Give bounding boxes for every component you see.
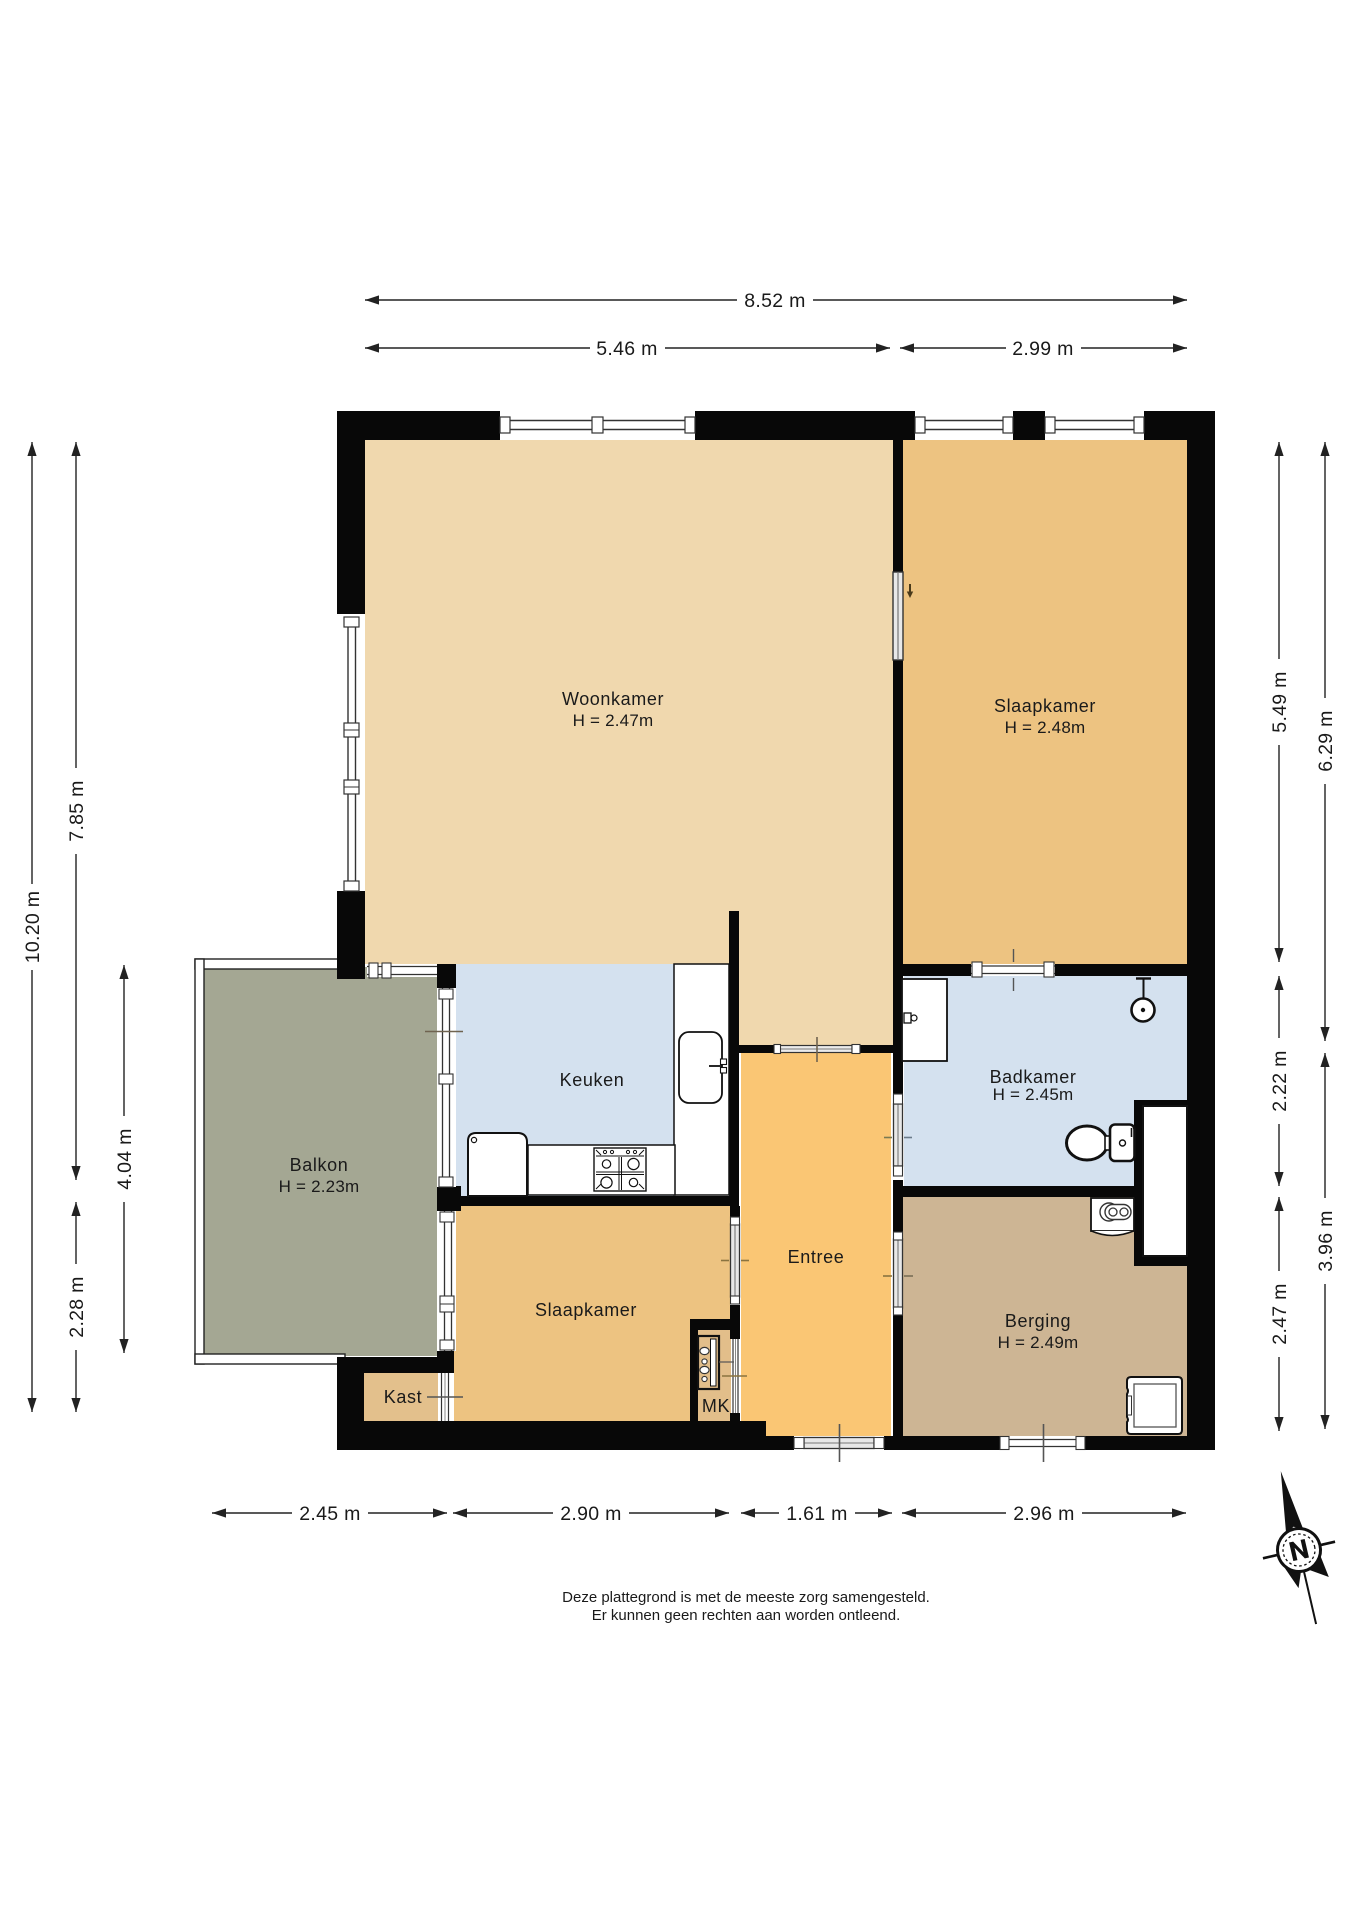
- svg-text:3.96 m: 3.96 m: [1315, 1210, 1337, 1271]
- svg-text:5.49 m: 5.49 m: [1269, 671, 1291, 732]
- svg-text:2.96 m: 2.96 m: [1013, 1503, 1074, 1525]
- svg-text:6.29 m: 6.29 m: [1315, 710, 1337, 771]
- svg-text:H = 2.45m: H = 2.45m: [993, 1085, 1074, 1104]
- svg-text:Kast: Kast: [384, 1387, 422, 1407]
- svg-text:Er kunnen geen rechten aan wor: Er kunnen geen rechten aan worden ontlee…: [592, 1607, 901, 1624]
- svg-text:Badkamer: Badkamer: [990, 1067, 1077, 1087]
- svg-text:1.61 m: 1.61 m: [786, 1503, 847, 1525]
- svg-text:2.47 m: 2.47 m: [1269, 1283, 1291, 1344]
- svg-text:Woonkamer: Woonkamer: [562, 689, 664, 709]
- svg-text:Slaapkamer: Slaapkamer: [994, 696, 1096, 716]
- svg-text:Keuken: Keuken: [560, 1070, 625, 1090]
- svg-text:H = 2.49m: H = 2.49m: [998, 1333, 1079, 1352]
- svg-text:7.85 m: 7.85 m: [66, 780, 88, 841]
- svg-text:MK: MK: [702, 1396, 730, 1416]
- svg-text:10.20 m: 10.20 m: [22, 891, 44, 964]
- svg-text:Balkon: Balkon: [290, 1155, 349, 1175]
- svg-text:H = 2.23m: H = 2.23m: [279, 1177, 360, 1196]
- svg-text:2.45 m: 2.45 m: [299, 1503, 360, 1525]
- svg-text:Berging: Berging: [1005, 1311, 1071, 1331]
- svg-text:H = 2.48m: H = 2.48m: [1005, 718, 1086, 737]
- svg-text:Slaapkamer: Slaapkamer: [535, 1300, 637, 1320]
- svg-text:5.46 m: 5.46 m: [596, 338, 657, 360]
- svg-text:Deze plattegrond is met de mee: Deze plattegrond is met de meeste zorg s…: [562, 1589, 930, 1606]
- svg-text:2.28 m: 2.28 m: [66, 1276, 88, 1337]
- svg-text:4.04 m: 4.04 m: [114, 1128, 136, 1189]
- svg-text:8.52 m: 8.52 m: [744, 290, 805, 312]
- svg-text:2.22 m: 2.22 m: [1269, 1050, 1291, 1111]
- svg-text:2.90 m: 2.90 m: [560, 1503, 621, 1525]
- svg-text:Entree: Entree: [788, 1247, 845, 1267]
- svg-text:H = 2.47m: H = 2.47m: [573, 711, 654, 730]
- svg-text:2.99 m: 2.99 m: [1012, 338, 1073, 360]
